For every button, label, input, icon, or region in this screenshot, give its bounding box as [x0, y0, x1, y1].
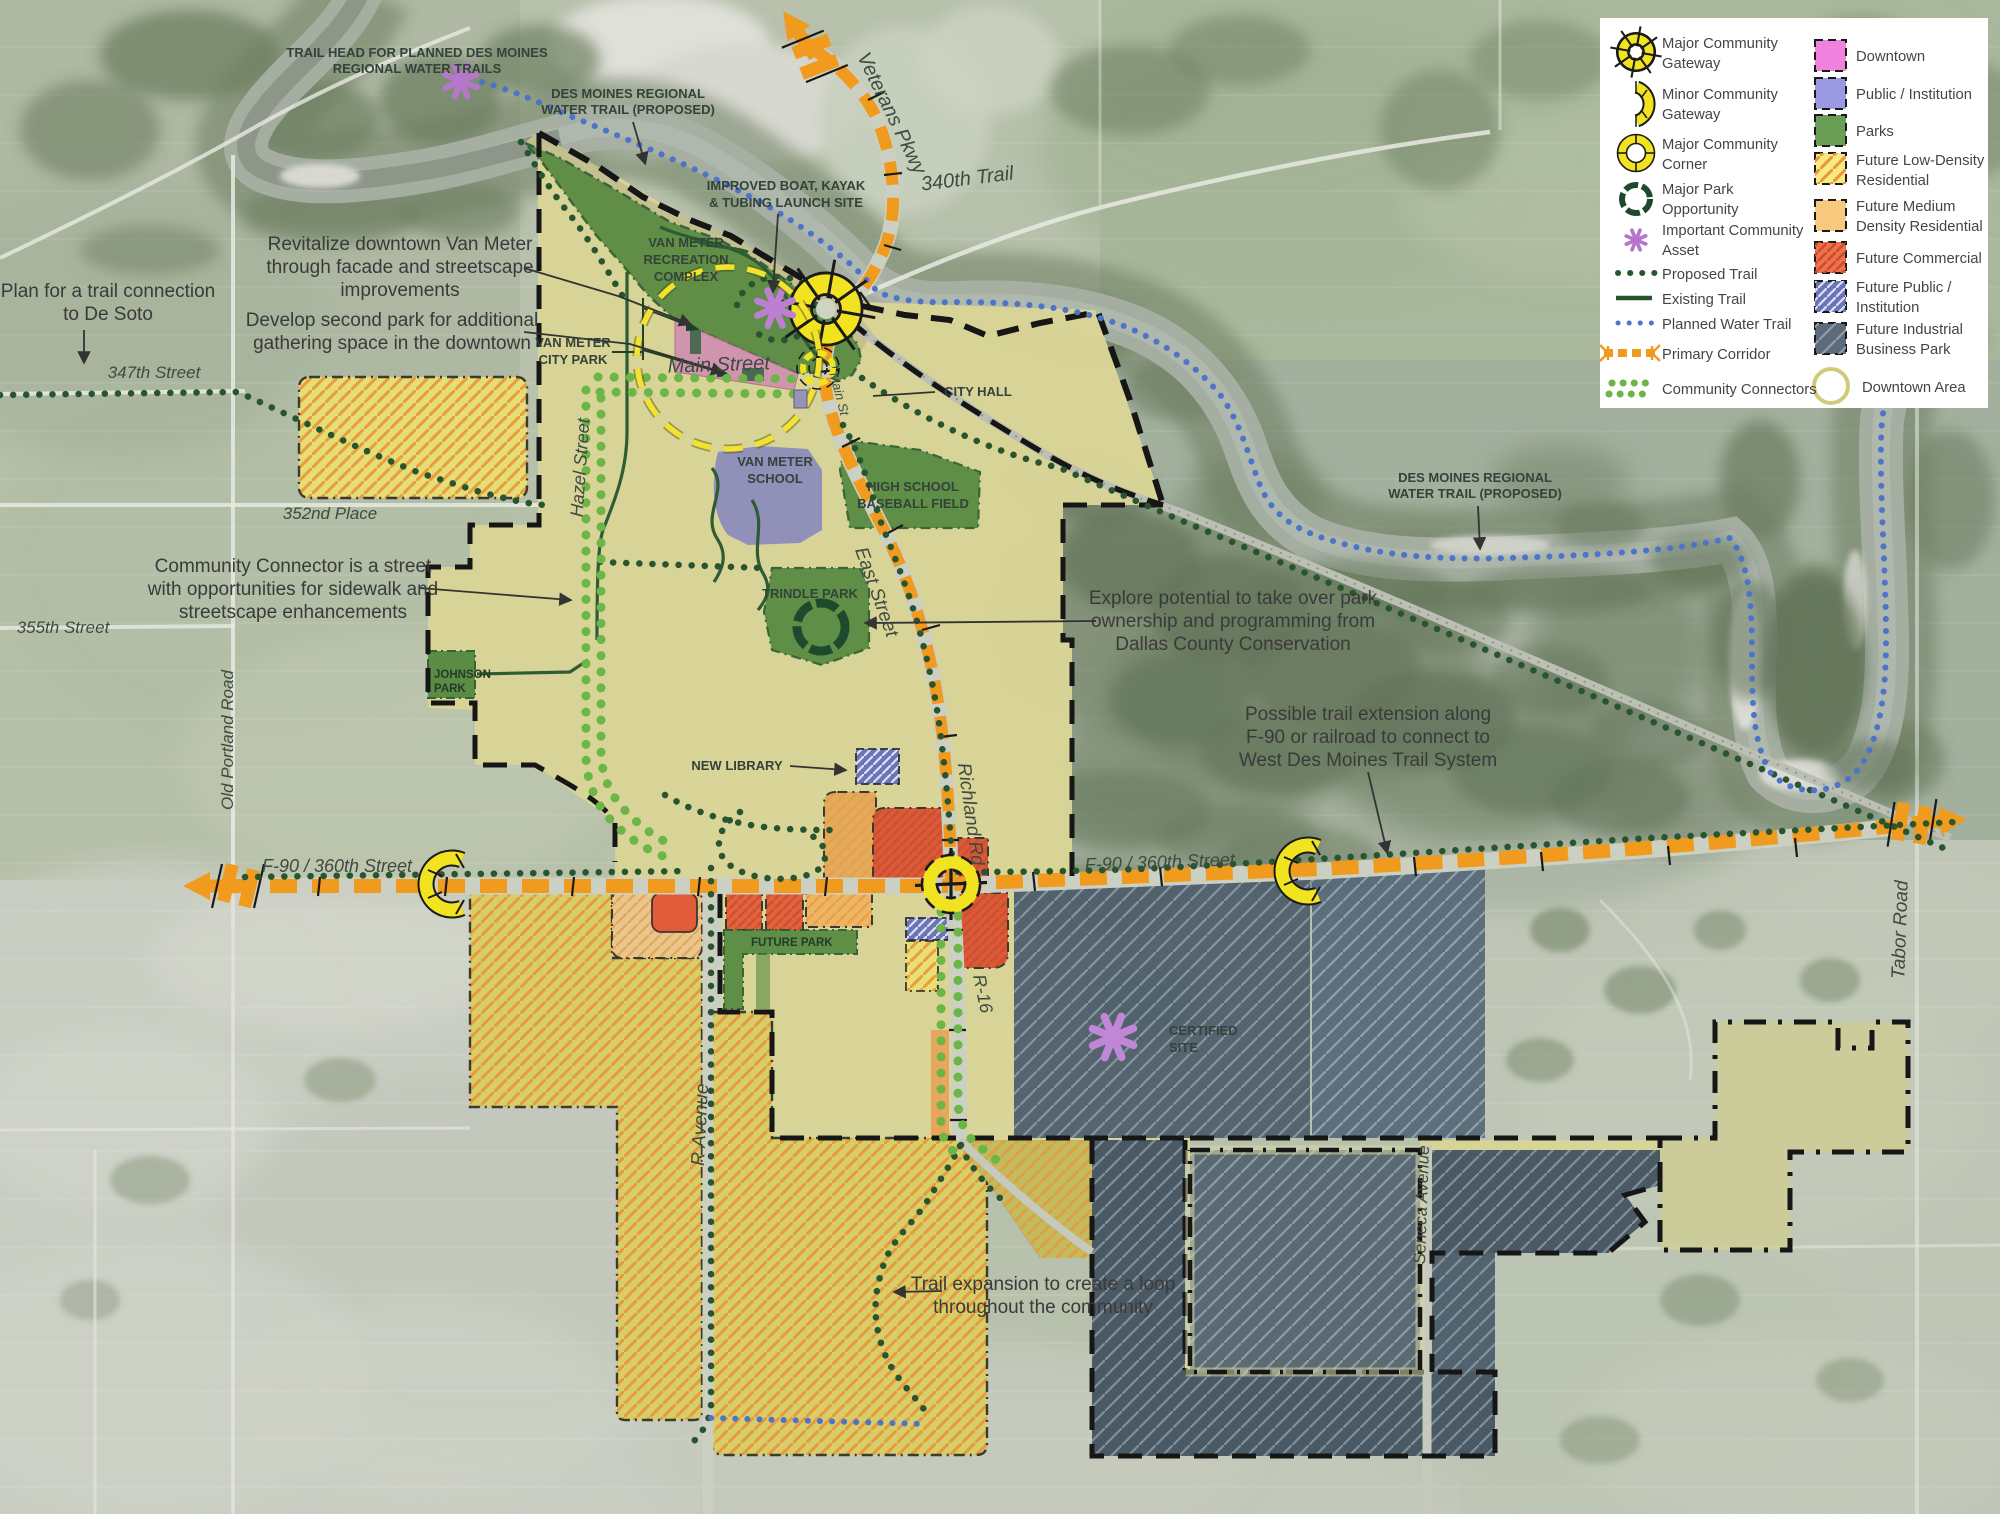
svg-text:& TUBING LAUNCH SITE: & TUBING LAUNCH SITE: [709, 195, 863, 210]
svg-text:CITY PARK: CITY PARK: [539, 352, 608, 367]
svg-text:PARK: PARK: [434, 683, 466, 695]
svg-text:Develop second park for additi: Develop second park for additional: [246, 310, 539, 331]
svg-text:NEW LIBRARY: NEW LIBRARY: [691, 758, 783, 773]
svg-text:Parks: Parks: [1856, 124, 1894, 140]
svg-text:Major Community: Major Community: [1662, 137, 1779, 153]
svg-text:Corner: Corner: [1662, 157, 1707, 173]
svg-text:VAN METER: VAN METER: [737, 454, 813, 469]
svg-text:TRINDLE PARK: TRINDLE PARK: [762, 586, 858, 601]
svg-text:Institution: Institution: [1856, 300, 1919, 316]
svg-text:Revitalize downtown Van Meter: Revitalize downtown Van Meter: [268, 234, 533, 255]
svg-text:ownership and programming from: ownership and programming from: [1091, 611, 1375, 632]
svg-text:SITE: SITE: [1169, 1040, 1198, 1055]
svg-text:Future Industrial: Future Industrial: [1856, 322, 1963, 338]
svg-text:F-90 or railroad to connect to: F-90 or railroad to connect to: [1246, 727, 1490, 748]
svg-text:RECREATION: RECREATION: [644, 252, 729, 267]
svg-text:Future Commercial: Future Commercial: [1856, 251, 1982, 267]
svg-text:Planned Water Trail: Planned Water Trail: [1662, 317, 1791, 333]
svg-text:West Des Moines Trail System: West Des Moines Trail System: [1239, 750, 1497, 771]
svg-text:347th Street: 347th Street: [108, 363, 202, 382]
svg-text:Minor Community: Minor Community: [1662, 87, 1779, 103]
svg-text:Residential: Residential: [1856, 173, 1929, 189]
svg-text:Community Connectors: Community Connectors: [1662, 382, 1817, 398]
svg-text:Existing Trail: Existing Trail: [1662, 292, 1746, 308]
svg-text:Opportunity: Opportunity: [1662, 202, 1739, 218]
svg-text:FUTURE PARK: FUTURE PARK: [751, 937, 833, 949]
svg-text:Dallas County Conservation: Dallas County Conservation: [1115, 634, 1351, 655]
svg-text:F-90 / 360th Street: F-90 / 360th Street: [262, 856, 413, 876]
svg-text:Downtown: Downtown: [1856, 49, 1925, 65]
svg-text:WATER TRAIL (PROPOSED): WATER TRAIL (PROPOSED): [1388, 486, 1562, 501]
svg-text:SCHOOL: SCHOOL: [747, 471, 803, 486]
svg-text:BASEBALL FIELD: BASEBALL FIELD: [857, 496, 969, 511]
svg-text:VAN METER: VAN METER: [648, 235, 724, 250]
svg-text:JOHNSON: JOHNSON: [434, 669, 491, 681]
svg-text:CITY HALL: CITY HALL: [944, 384, 1012, 399]
svg-text:352nd Place: 352nd Place: [283, 504, 378, 523]
svg-text:Plan for a trail connection: Plan for a trail connection: [1, 281, 215, 302]
svg-text:Future Public /: Future Public /: [1856, 280, 1952, 296]
svg-text:Tabor Road: Tabor Road: [1888, 879, 1912, 980]
svg-text:Trail expansion to create a lo: Trail expansion to create a loop: [911, 1274, 1175, 1295]
svg-text:throughout the community: throughout the community: [933, 1297, 1153, 1318]
svg-text:Downtown Area: Downtown Area: [1862, 380, 1966, 396]
svg-text:HIGH SCHOOL: HIGH SCHOOL: [867, 479, 959, 494]
svg-text:VAN METER: VAN METER: [535, 335, 611, 350]
svg-text:Community Connector is a stree: Community Connector is a street: [155, 556, 432, 577]
svg-text:Major Community: Major Community: [1662, 36, 1779, 52]
svg-text:IMPROVED BOAT, KAYAK: IMPROVED BOAT, KAYAK: [707, 178, 866, 193]
svg-text:Important Community: Important Community: [1662, 223, 1804, 239]
svg-text:streetscape enhancements: streetscape enhancements: [179, 602, 407, 623]
svg-text:Public / Institution: Public / Institution: [1856, 87, 1972, 103]
svg-text:Proposed Trail: Proposed Trail: [1662, 267, 1757, 283]
svg-text:improvements: improvements: [340, 280, 459, 301]
svg-text:Primary Corridor: Primary Corridor: [1662, 347, 1771, 363]
svg-text:Gateway: Gateway: [1662, 107, 1721, 123]
svg-text:Major Park: Major Park: [1662, 182, 1734, 198]
svg-text:Gateway: Gateway: [1662, 56, 1721, 72]
svg-text:with opportunities for sidewal: with opportunities for sidewalk and: [147, 579, 438, 600]
svg-text:Future Low-Density: Future Low-Density: [1856, 153, 1985, 169]
svg-text:TRAIL HEAD FOR PLANNED DES MOI: TRAIL HEAD FOR PLANNED DES MOINES: [286, 45, 548, 60]
svg-text:Old Portland Road: Old Portland Road: [218, 670, 237, 810]
svg-text:to De Soto: to De Soto: [63, 304, 153, 325]
svg-text:DES MOINES REGIONAL: DES MOINES REGIONAL: [551, 86, 705, 101]
svg-text:Possible trail extension along: Possible trail extension along: [1245, 704, 1491, 725]
svg-text:Business Park: Business Park: [1856, 342, 1951, 358]
svg-text:COMPLEX: COMPLEX: [654, 269, 719, 284]
svg-text:355th Street: 355th Street: [17, 618, 111, 637]
svg-text:Future Medium: Future Medium: [1856, 199, 1956, 215]
svg-text:Main Street: Main Street: [667, 352, 771, 378]
svg-text:DES MOINES REGIONAL: DES MOINES REGIONAL: [1398, 470, 1552, 485]
svg-text:CERTIFIED: CERTIFIED: [1169, 1023, 1238, 1038]
svg-text:through facade and streetscape: through facade and streetscape: [266, 257, 533, 278]
svg-text:gathering space in the downtow: gathering space in the downtown: [253, 333, 531, 354]
svg-text:Explore potential to take over: Explore potential to take over park: [1089, 588, 1378, 609]
svg-text:R Avenue: R Avenue: [688, 1083, 713, 1166]
svg-text:WATER TRAIL (PROPOSED): WATER TRAIL (PROPOSED): [541, 102, 715, 117]
svg-text:REGIONAL WATER TRAILS: REGIONAL WATER TRAILS: [333, 61, 502, 76]
svg-text:Asset: Asset: [1662, 243, 1699, 259]
svg-text:Density Residential: Density Residential: [1856, 219, 1983, 235]
